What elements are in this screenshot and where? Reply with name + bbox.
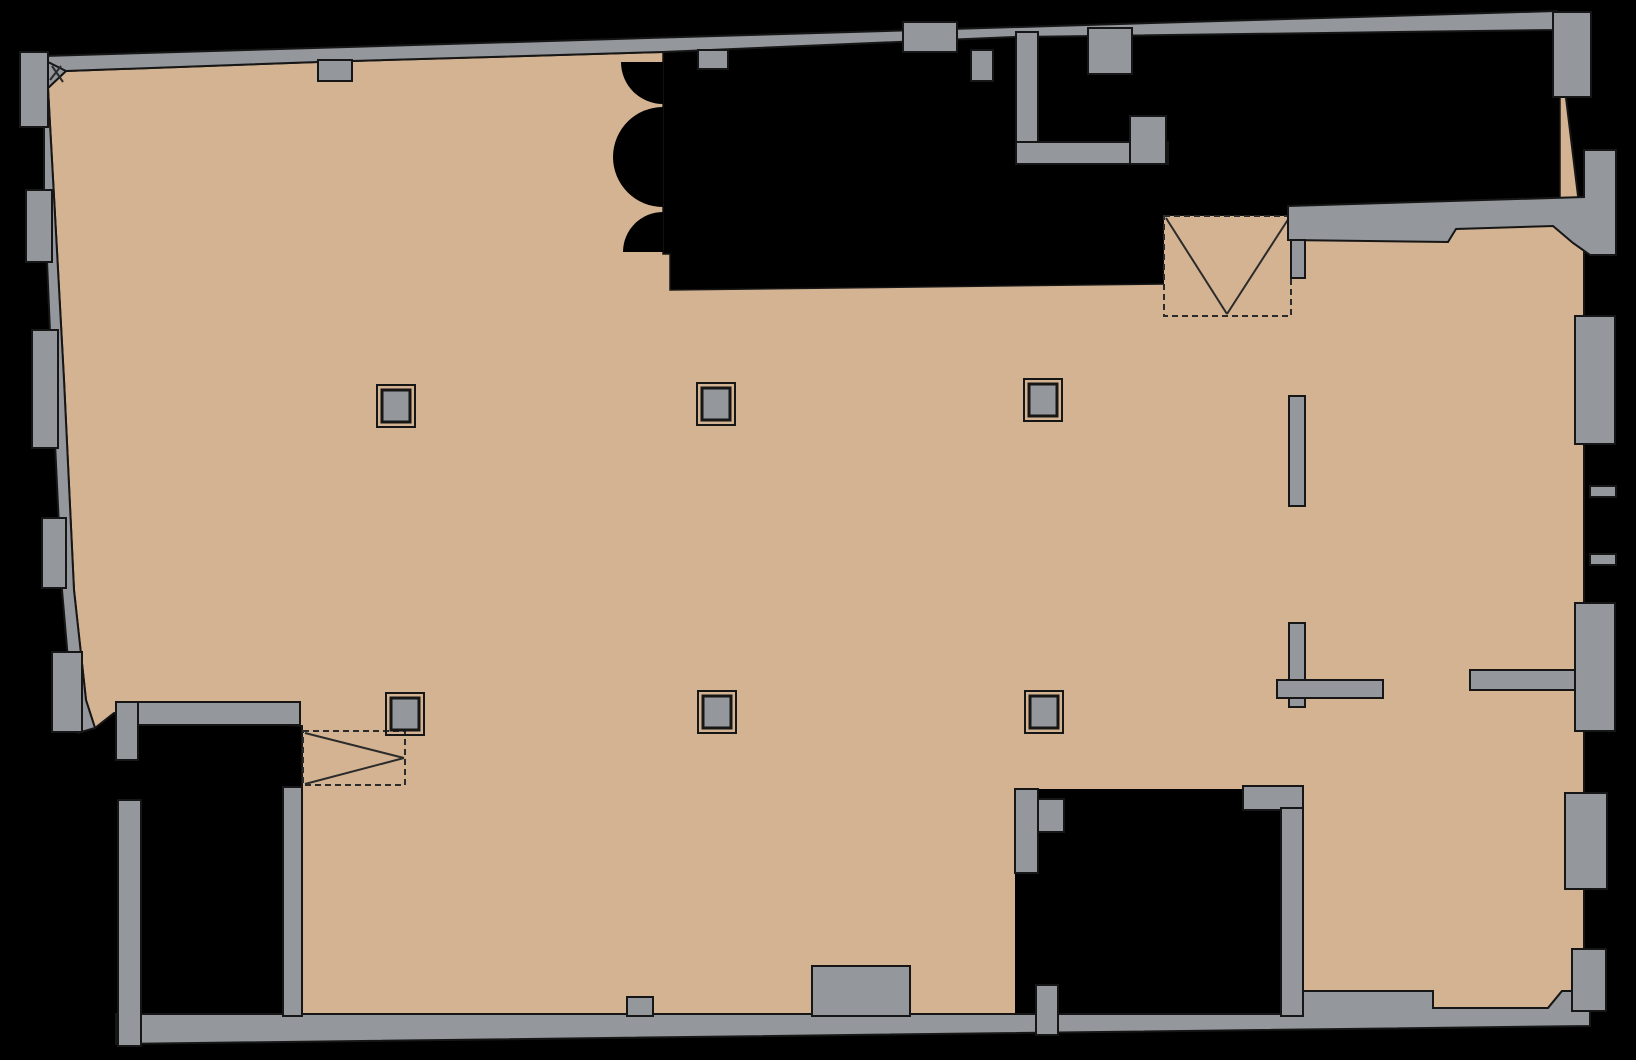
column-core: [382, 390, 410, 422]
structural-column: [386, 693, 424, 735]
wall-room1-right: [283, 787, 302, 1016]
wall-room2-left-lower: [1036, 985, 1058, 1035]
wall-wing-stub: [1291, 240, 1305, 278]
stairwell-upper: [1164, 216, 1291, 316]
wall-bottom-bump-small: [627, 997, 653, 1016]
structural-column: [697, 383, 735, 425]
wall-pier-top-outer: [903, 22, 957, 52]
wall-tee-arm: [1277, 680, 1383, 698]
wall-pier-right-4: [1572, 949, 1606, 1011]
wall-room2-head: [1243, 786, 1303, 810]
wall-room2-left-upper: [1015, 789, 1038, 873]
column-core: [702, 388, 730, 420]
wall-pilaster-left-3: [32, 330, 58, 448]
wall-room2-stub: [1038, 799, 1064, 832]
wall-pilaster-left-1: [20, 52, 48, 127]
floor-plan-svg: [0, 0, 1636, 1060]
wall-stub-right-1: [1590, 486, 1616, 497]
column-core: [1029, 384, 1057, 416]
wall-room1-top: [116, 702, 300, 725]
wall-pilaster-left-2: [26, 190, 52, 262]
wall-room1-left-upper: [116, 702, 138, 760]
void-room-lower-left: [138, 725, 283, 1016]
wall-pier-right-1: [1575, 316, 1615, 444]
wall-pier-right-3: [1565, 793, 1607, 889]
wall-room1-left-lower: [118, 800, 141, 1046]
wall-pilaster-top-2: [698, 50, 728, 69]
structural-column: [1025, 691, 1063, 733]
wall-arm-right: [1470, 670, 1576, 690]
wall-pilaster-left-5: [52, 652, 82, 732]
structural-column: [377, 385, 415, 427]
wall-pilaster-top-3: [971, 50, 993, 81]
wall-stub-right-2: [1590, 554, 1616, 565]
wall-shaft-right: [1130, 116, 1166, 164]
wall-partition-bar: [1289, 396, 1305, 506]
column-core: [391, 698, 419, 730]
wall-shaft-stub: [1088, 28, 1132, 74]
floor-plan-stage: [0, 0, 1636, 1060]
column-core: [1030, 696, 1058, 728]
wall-pier-right-2: [1575, 603, 1615, 731]
wall-pilaster-top-1: [318, 60, 352, 81]
wall-pilaster-left-4: [42, 518, 66, 588]
structural-column: [1024, 379, 1062, 421]
wall-room2-right: [1281, 808, 1303, 1016]
column-core: [703, 696, 731, 728]
wall-bottom-bump-large: [812, 966, 910, 1016]
wall-corner-top-right: [1553, 12, 1591, 97]
structural-column: [698, 691, 736, 733]
